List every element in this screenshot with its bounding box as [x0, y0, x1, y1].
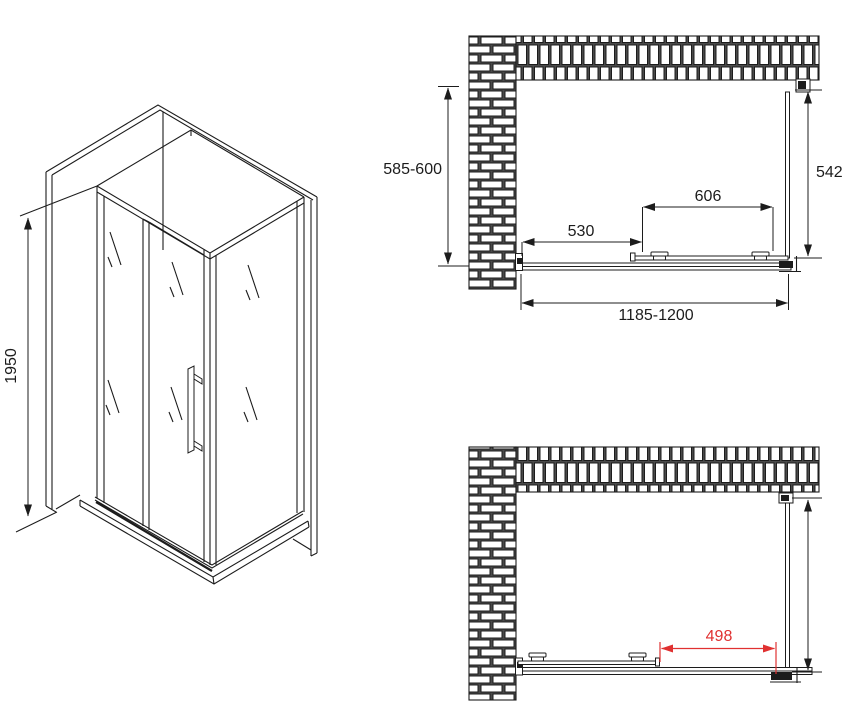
bottom-plan-view: 498: [469, 447, 822, 700]
bottom-view-wall-left: [469, 447, 516, 700]
iso-door-handle: [188, 366, 202, 453]
top-plan-view: 585-600 542 606 530: [383, 36, 843, 324]
wall-depth-label: 585-600: [383, 161, 442, 178]
iso-height-label: 1950: [3, 348, 20, 384]
bottom-view-roller-left: [529, 653, 546, 661]
bottom-view-wall-top: [516, 447, 819, 492]
dimension-side-glass: 542: [794, 90, 843, 258]
total-width-label: 1185-1200: [618, 307, 693, 324]
top-view-side-glass: [786, 79, 811, 258]
iso-top-frame: [97, 130, 304, 259]
top-view-sliding-door: [631, 252, 789, 261]
top-view-track: [520, 263, 791, 270]
opening-width-label: 498: [706, 628, 733, 645]
door-width-label: 606: [695, 188, 722, 205]
top-view-roller-left: [651, 252, 668, 260]
top-view-roller-right: [752, 252, 769, 260]
bottom-view-roller-right: [629, 653, 646, 661]
iso-walls: [46, 105, 317, 556]
dimension-wall-depth: 585-600: [383, 87, 469, 267]
top-view-wall-top: [516, 36, 819, 80]
bottom-view-side-glass: [779, 493, 793, 672]
iso-glass-reflection-marks: [106, 232, 259, 422]
dimension-right-unlabeled: [792, 498, 822, 672]
iso-dimension-height: 1950: [3, 186, 97, 532]
iso-view: 1950: [3, 105, 317, 584]
bottom-view-track: [516, 668, 812, 675]
top-view-dimensions: 585-600 542 606 530: [383, 87, 843, 325]
dimension-fixed-panel: 530: [522, 223, 642, 256]
top-view-wall-profile: [516, 254, 524, 271]
iso-shower-tray: [80, 497, 309, 584]
bottom-view-dimensions: 498: [660, 498, 822, 674]
bottom-view-sliding-door-open: [518, 653, 660, 666]
fixed-panel-label: 530: [568, 223, 595, 240]
dimension-door-width: 606: [643, 188, 774, 252]
top-view-wall-left: [469, 36, 516, 289]
shower-enclosure-drawing: 1950: [0, 0, 853, 710]
dimension-total-width: 1185-1200: [521, 274, 789, 324]
side-glass-label: 542: [816, 164, 843, 181]
technical-drawing-canvas: 1950: [0, 0, 853, 710]
